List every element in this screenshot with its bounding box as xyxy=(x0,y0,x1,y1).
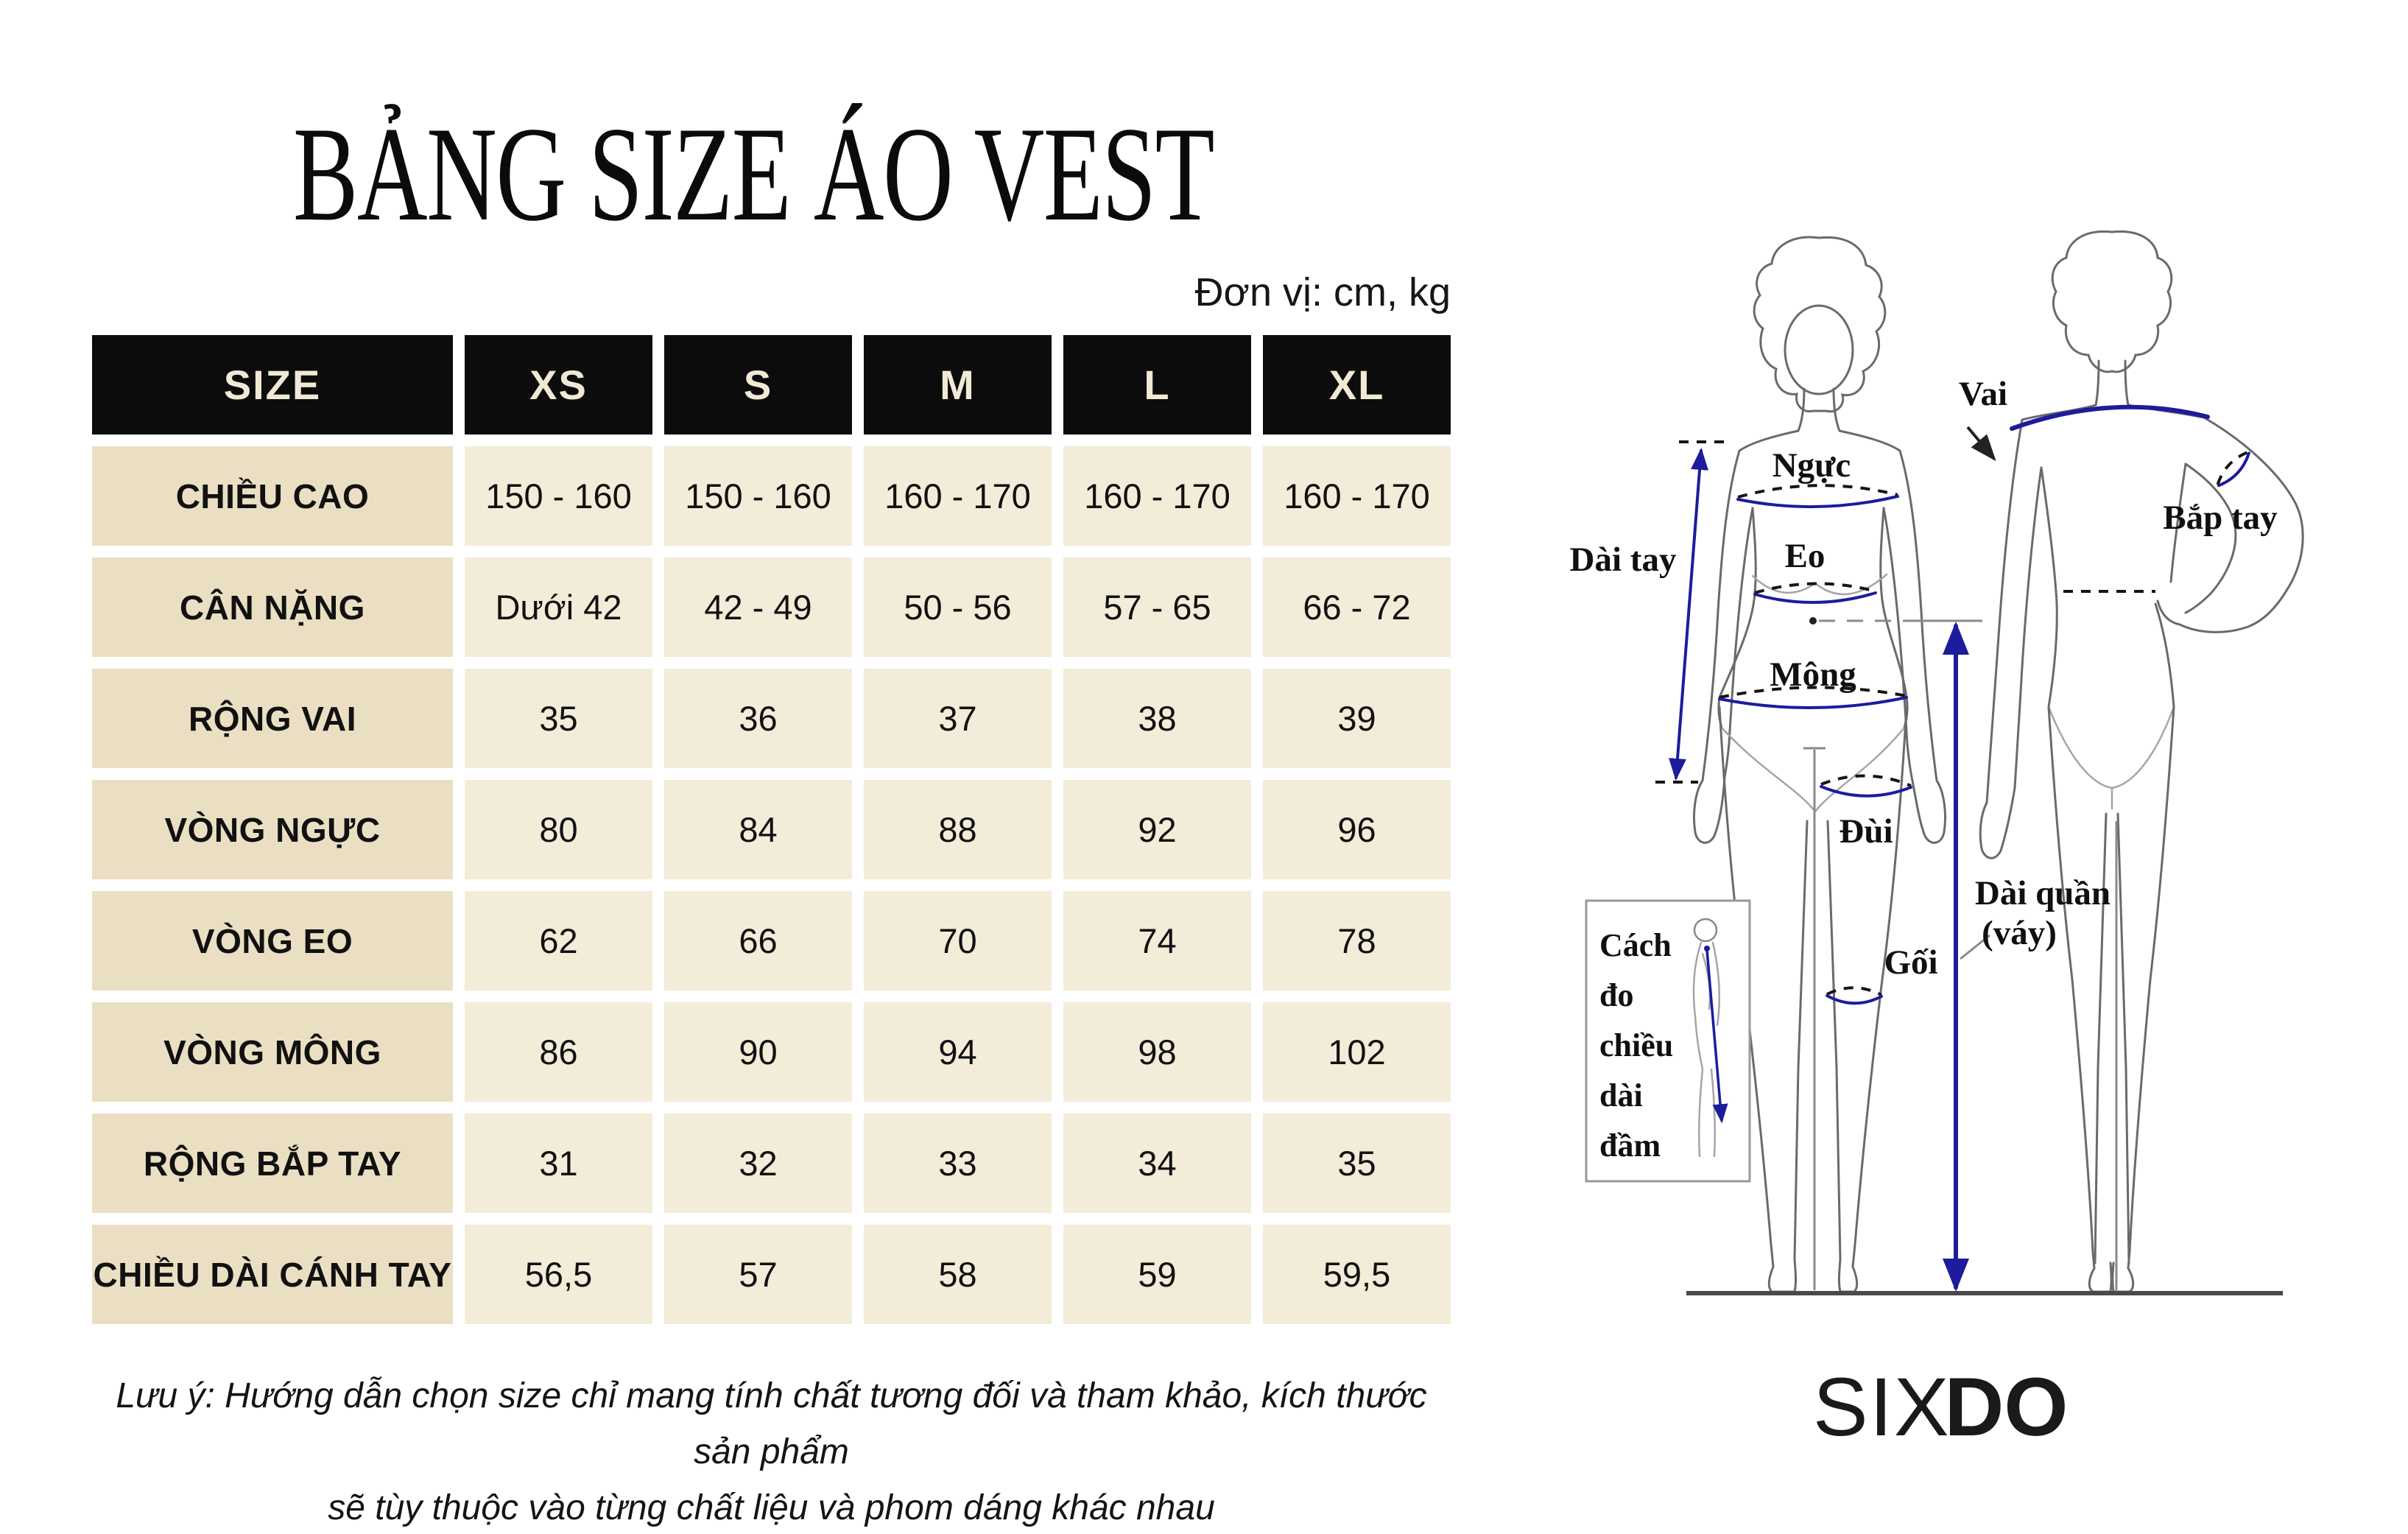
table-cell: 66 - 72 xyxy=(1263,557,1451,657)
column-header-size: SIZE xyxy=(92,335,453,434)
label-nguc: Ngực xyxy=(1772,446,1851,485)
measurement-diagram: Dài tay Ngực Eo Mông Đùi Gối Vai Bắp tay… xyxy=(1510,96,2408,1318)
table-cell: 50 - 56 xyxy=(864,557,1052,657)
column-header-xs: XS xyxy=(465,335,652,434)
table-cell: 57 - 65 xyxy=(1063,557,1251,657)
table-cell: 102 xyxy=(1263,1002,1451,1102)
table-cell: 36 xyxy=(664,669,852,768)
table-cell: 94 xyxy=(864,1002,1052,1102)
inset-text-1: Cách xyxy=(1599,927,1672,963)
table-cell: Dưới 42 xyxy=(465,557,652,657)
table-cell: 160 - 170 xyxy=(1063,446,1251,546)
table-cell: 150 - 160 xyxy=(664,446,852,546)
row-label: CHIỀU CAO xyxy=(92,446,453,546)
bicep-line xyxy=(2219,453,2253,489)
hip-line xyxy=(1719,697,1907,708)
label-dai-quan-vay: (váy) xyxy=(1982,914,2057,952)
thigh-line xyxy=(1821,787,1911,796)
table-cell: 74 xyxy=(1063,891,1251,991)
table-cell: 78 xyxy=(1263,891,1451,991)
front-hip-curves xyxy=(1722,728,1904,812)
table-cell: 32 xyxy=(664,1113,852,1213)
table-cell: 59 xyxy=(1063,1225,1251,1324)
dress-length-inset: Cách đo chiều dài đầm xyxy=(1586,901,1750,1181)
table-cell: 160 - 170 xyxy=(1263,446,1451,546)
unit-note: Đơn vị: cm, kg xyxy=(1031,270,1451,315)
table-cell: 39 xyxy=(1263,669,1451,768)
table-cell: 58 xyxy=(864,1225,1052,1324)
thigh-dashed-arc xyxy=(1821,775,1911,786)
column-header-s: S xyxy=(664,335,852,434)
row-label: VÒNG EO xyxy=(92,891,453,991)
inset-text-2: đo xyxy=(1599,977,1633,1013)
table-cell: 37 xyxy=(864,669,1052,768)
size-table: SIZE XS S M L XL CHIỀU CAO 150 - 160 150… xyxy=(92,335,1451,1324)
table-cell: 88 xyxy=(864,780,1052,879)
label-goi: Gối xyxy=(1884,943,1937,982)
label-dai-tay: Dài tay xyxy=(1570,541,1677,579)
label-mong: Mông xyxy=(1770,655,1856,694)
page-title: BẢNG SIZE ÁO VEST xyxy=(293,103,1214,245)
label-vai: Vai xyxy=(1959,375,2007,413)
row-label: RỘNG VAI xyxy=(92,669,453,768)
back-left-leg xyxy=(2049,707,2106,1268)
table-cell: 57 xyxy=(664,1225,852,1324)
table-cell: 42 - 49 xyxy=(664,557,852,657)
column-header-m: M xyxy=(864,335,1052,434)
inset-text-5: đầm xyxy=(1599,1127,1661,1164)
front-face xyxy=(1785,306,1853,394)
table-cell: 86 xyxy=(465,1002,652,1102)
label-dui: Đùi xyxy=(1839,812,1893,851)
inset-text-3: chiều xyxy=(1599,1027,1673,1063)
footnote: Lưu ý: Hướng dẫn chọn size chỉ mang tính… xyxy=(92,1368,1451,1534)
label-dai-quan: Dài quần xyxy=(1975,874,2110,912)
table-cell: 66 xyxy=(664,891,852,991)
label-eo: Eo xyxy=(1785,537,1826,575)
row-label: RỘNG BẮP TAY xyxy=(92,1113,453,1213)
table-cell: 35 xyxy=(465,669,652,768)
table-cell: 84 xyxy=(664,780,852,879)
back-hip-curves xyxy=(2049,707,2174,809)
inset-text-4: dài xyxy=(1599,1077,1643,1113)
table-cell: 34 xyxy=(1063,1113,1251,1213)
table-cell: 38 xyxy=(1063,669,1251,768)
row-label: CÂN NẶNG xyxy=(92,557,453,657)
shoulder-line xyxy=(2012,407,2208,429)
table-cell: 98 xyxy=(1063,1002,1251,1102)
table-cell: 90 xyxy=(664,1002,852,1102)
front-feet xyxy=(1769,1259,1856,1292)
table-cell: 70 xyxy=(864,891,1052,991)
table-cell: 33 xyxy=(864,1113,1052,1213)
back-figure-outline xyxy=(1980,231,2303,1292)
knee-dashed-arc xyxy=(1827,988,1881,995)
size-chart-page: BẢNG SIZE ÁO VEST Đơn vị: cm, kg SIZE XS… xyxy=(0,0,2408,1534)
waist-point-dot xyxy=(1809,617,1817,624)
logo-do: DO xyxy=(1945,1361,2069,1453)
sleeve-length-arrow xyxy=(1676,451,1701,778)
footnote-line-1: Lưu ý: Hướng dẫn chọn size chỉ mang tính… xyxy=(92,1368,1451,1480)
row-label: VÒNG MÔNG xyxy=(92,1002,453,1102)
table-cell: 96 xyxy=(1263,780,1451,879)
row-label: CHIỀU DÀI CÁNH TAY xyxy=(92,1225,453,1324)
table-cell: 92 xyxy=(1063,780,1251,879)
front-bust-curves xyxy=(1753,574,1887,594)
label-bap-tay: Bắp tay xyxy=(2163,499,2278,537)
vai-arrow xyxy=(1968,427,1994,459)
back-hair xyxy=(2052,231,2172,371)
footnote-line-2: sẽ tùy thuộc vào từng chất liệu và phom … xyxy=(92,1480,1451,1534)
front-left-arm xyxy=(1694,451,1753,842)
table-cell: 150 - 160 xyxy=(465,446,652,546)
column-header-xl: XL xyxy=(1263,335,1451,434)
sixdo-logo: SIXDO xyxy=(1813,1359,2069,1454)
bicep-mark xyxy=(2214,448,2253,489)
table-cell: 160 - 170 xyxy=(864,446,1052,546)
table-cell: 56,5 xyxy=(465,1225,652,1324)
table-cell: 35 xyxy=(1263,1113,1451,1213)
table-cell: 59,5 xyxy=(1263,1225,1451,1324)
column-header-l: L xyxy=(1063,335,1251,434)
row-label: VÒNG NGỰC xyxy=(92,780,453,879)
chest-line xyxy=(1738,496,1898,507)
waist-line xyxy=(1755,593,1876,602)
back-feet xyxy=(2089,1263,2133,1292)
chest-dashed-arc xyxy=(1738,485,1898,497)
back-right-leg xyxy=(2118,707,2174,1268)
logo-six: SIX xyxy=(1813,1361,1951,1453)
table-cell: 80 xyxy=(465,780,652,879)
front-right-leg xyxy=(1828,707,1907,1267)
table-cell: 62 xyxy=(465,891,652,991)
table-cell: 31 xyxy=(465,1113,652,1213)
back-left-arm xyxy=(1980,420,2041,858)
